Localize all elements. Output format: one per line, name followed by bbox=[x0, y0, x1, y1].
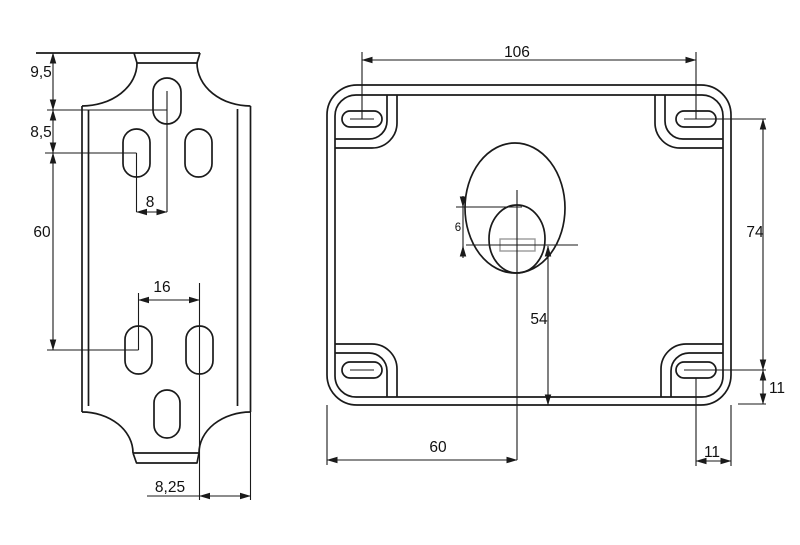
dim-label-54: 54 bbox=[530, 311, 548, 328]
bracket-extension-lines bbox=[45, 91, 251, 500]
drawing-canvas: 9,5 8,5 60 8 16 8,25 bbox=[0, 0, 800, 545]
dim-label-16: 16 bbox=[153, 279, 170, 296]
right-view-cover-plate: 106 74 54 60 11 11 6 bbox=[327, 44, 785, 466]
corner-pads bbox=[335, 95, 723, 397]
dim-label-8-5: 8,5 bbox=[30, 124, 52, 141]
plate-inner-edge bbox=[335, 95, 723, 397]
technical-drawing: 9,5 8,5 60 8 16 8,25 bbox=[0, 0, 800, 545]
bracket-outline bbox=[36, 53, 251, 463]
dim-label-11-vertical: 11 bbox=[769, 380, 785, 397]
dim-label-8-25: 8,25 bbox=[155, 479, 185, 496]
dim-label-8: 8 bbox=[146, 194, 155, 211]
dim-label-11-horizontal: 11 bbox=[704, 444, 720, 461]
dim-label-9-5: 9,5 bbox=[30, 64, 52, 81]
dim-label-74: 74 bbox=[746, 224, 764, 241]
center-boss bbox=[465, 143, 578, 460]
left-view-bracket: 9,5 8,5 60 8 16 8,25 bbox=[30, 53, 250, 500]
dim-label-60: 60 bbox=[33, 224, 51, 241]
dim-label-106: 106 bbox=[504, 44, 530, 61]
boss-large-circle bbox=[465, 143, 565, 273]
slot-row2-right bbox=[185, 129, 212, 177]
slot-bottom-center bbox=[154, 390, 180, 438]
dim-label-6: 6 bbox=[455, 222, 461, 234]
dim-label-60-right: 60 bbox=[429, 439, 447, 456]
